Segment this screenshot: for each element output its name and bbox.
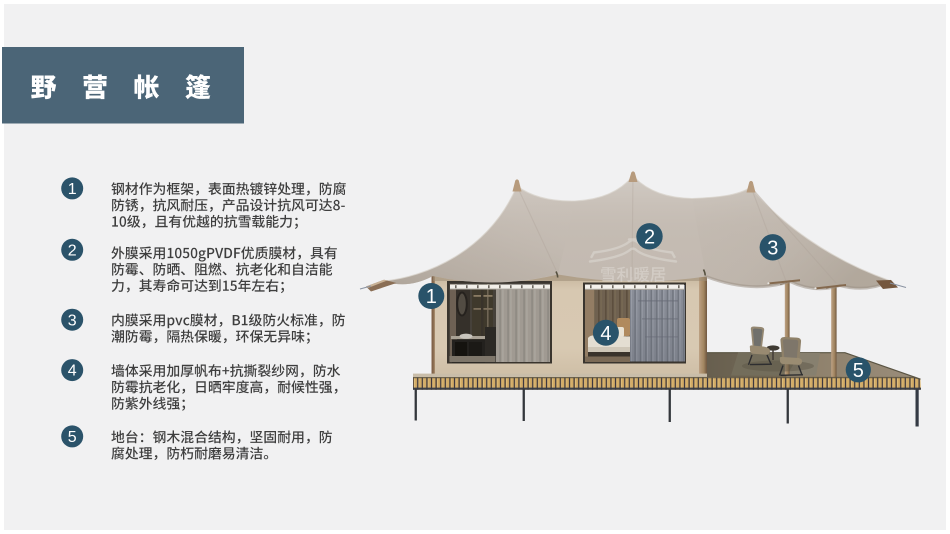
svg-text:5: 5 — [853, 360, 864, 382]
svg-text:5: 5 — [68, 429, 77, 446]
svg-text:1: 1 — [68, 181, 77, 198]
svg-text:1: 1 — [426, 286, 437, 308]
svg-text:4: 4 — [600, 323, 611, 345]
svg-text:3: 3 — [767, 237, 778, 259]
svg-text:2: 2 — [644, 226, 655, 248]
svg-text:2: 2 — [68, 242, 77, 259]
svg-text:3: 3 — [68, 312, 77, 329]
svg-text:4: 4 — [68, 363, 77, 380]
